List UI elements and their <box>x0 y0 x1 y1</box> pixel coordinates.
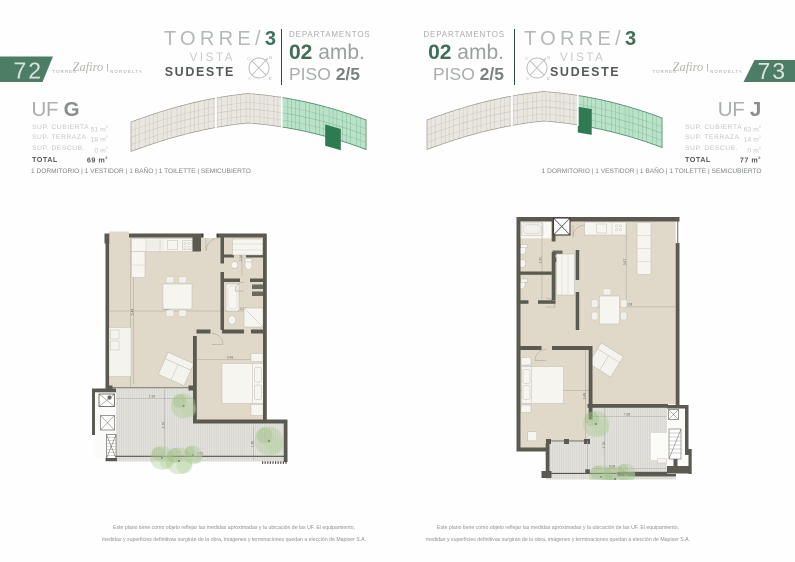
svg-text:1.90: 1.90 <box>149 395 156 399</box>
svg-text:73: 73 <box>758 58 788 84</box>
svg-text:1.46: 1.46 <box>251 441 255 448</box>
svg-text:N: N <box>269 55 272 60</box>
svg-text:O: O <box>247 56 251 61</box>
svg-text:2.40: 2.40 <box>539 257 543 264</box>
svg-text:3.67: 3.67 <box>623 259 627 266</box>
svg-text:N: N <box>547 55 550 60</box>
svg-text:2.76: 2.76 <box>602 442 606 449</box>
svg-text:3.48: 3.48 <box>583 393 587 400</box>
svg-text:5.44: 5.44 <box>131 309 135 316</box>
svg-text:7.68: 7.68 <box>624 413 631 417</box>
svg-text:3.48: 3.48 <box>227 356 234 360</box>
svg-text:O: O <box>525 56 529 61</box>
svg-text:2.26: 2.26 <box>239 255 243 262</box>
svg-text:2.76: 2.76 <box>162 422 166 429</box>
